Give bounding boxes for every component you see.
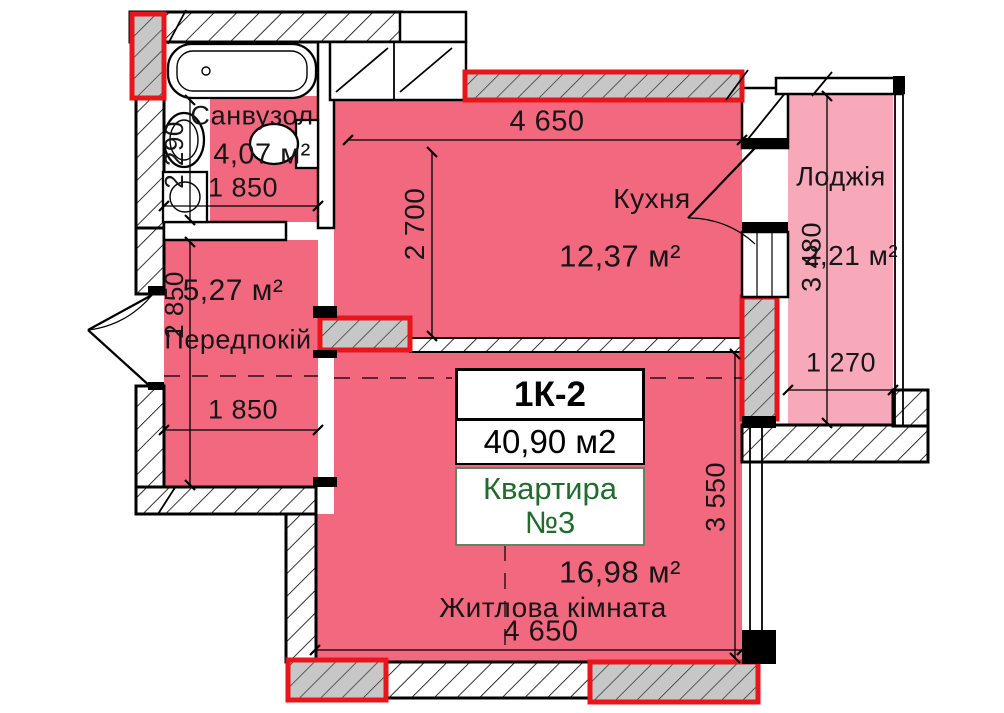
living-room-width-dimension: 4 650	[503, 618, 578, 647]
apartment-unit-line2: №3	[457, 506, 643, 540]
kitchen-depth-dimension: 2 700	[401, 188, 429, 261]
loggia-name-label: Лоджія	[796, 164, 886, 191]
living-room-depth-dimension: 3 550	[703, 462, 730, 532]
hallway-area-label: 5,27 м²	[183, 276, 284, 306]
hallway-depth-dimension: 2 850	[161, 271, 187, 339]
apartment-unit-line1: Квартира	[457, 472, 643, 506]
bathroom-depth-dimension: 2 290	[161, 121, 187, 189]
bathtub-icon	[168, 44, 316, 98]
apartment-type-code: 1К-2	[455, 368, 645, 421]
kitchen-name-label: Кухня	[613, 185, 690, 213]
floor-plan: Санвузол 4,07 м² 1 850 2 290 5,27 м² Пер…	[0, 0, 1004, 713]
entrance-door-icon	[88, 295, 152, 388]
loggia-width-dimension: 1 270	[806, 350, 876, 377]
kitchen-area-label: 12,37 м²	[559, 241, 681, 272]
bathroom-area-label: 4,07 м²	[213, 141, 311, 170]
apartment-total-area: 40,90 м2	[455, 421, 645, 465]
apartment-card: 1К-2 40,90 м2 Квартира №3	[455, 368, 645, 546]
living-room-area-label: 16,98 м²	[559, 557, 681, 588]
hallway-width-dimension: 1 850	[208, 397, 278, 424]
bathroom-name-label: Санвузол	[190, 103, 313, 130]
apartment-unit-label: Квартира №3	[455, 467, 645, 546]
bathroom-width-dimension: 1 850	[208, 175, 278, 202]
kitchen-width-dimension: 4 650	[509, 108, 584, 137]
loggia-area-label: 2,21 м²	[804, 242, 898, 270]
kitchen-loggia-window-icon	[742, 232, 788, 297]
